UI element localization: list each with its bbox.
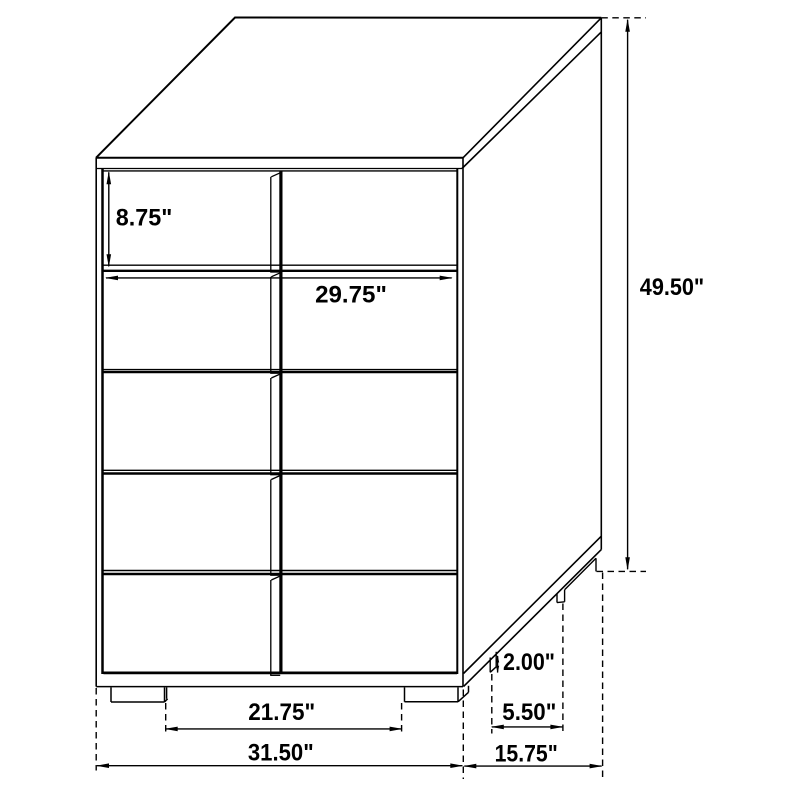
svg-text:31.50": 31.50" [248, 740, 314, 767]
svg-text:49.50": 49.50" [640, 274, 704, 301]
svg-text:15.75": 15.75" [495, 740, 558, 767]
svg-text:2.00": 2.00" [503, 649, 555, 676]
svg-text:5.50": 5.50" [502, 699, 556, 726]
svg-text:8.75": 8.75" [116, 205, 173, 232]
svg-text:21.75": 21.75" [248, 699, 315, 726]
svg-text:29.75": 29.75" [315, 281, 387, 308]
